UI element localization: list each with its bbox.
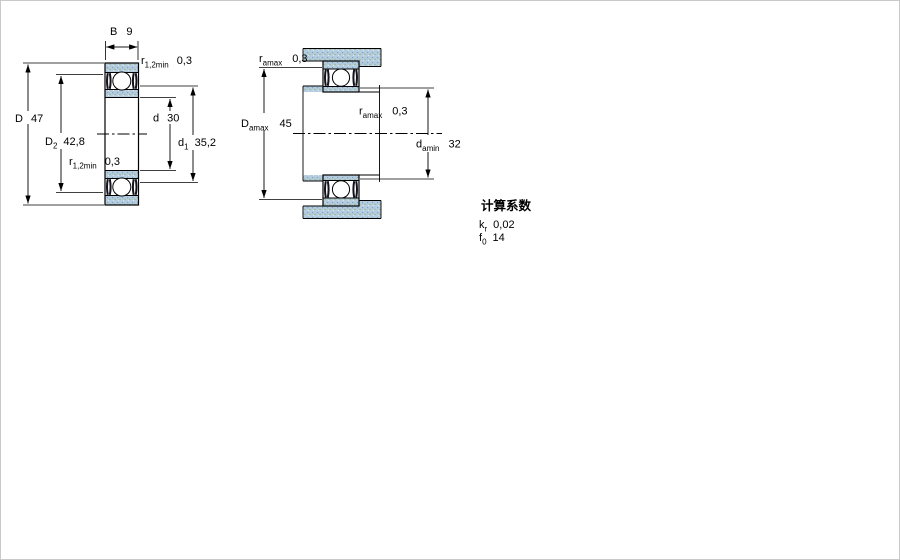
bearing-dimension-drawing: B9 r1,2min0,3 D47 D242,8 r1,2min0,3 xyxy=(0,0,900,560)
factors-heading: 计算系数 xyxy=(481,198,532,213)
seal-bottom-right xyxy=(133,179,137,195)
label-d1: d135,2 xyxy=(178,137,216,152)
seal-top-right xyxy=(353,70,357,86)
seal-top-left xyxy=(107,73,111,89)
label-ramax-top: ramax0,3 xyxy=(259,53,308,68)
seal-top-right xyxy=(133,73,137,89)
label-ramax-mid: ramax0,3 xyxy=(359,106,408,121)
seal-bottom-left xyxy=(107,179,111,195)
seal-bottom-right xyxy=(353,181,357,197)
shaft-shoulder-bottom xyxy=(303,175,323,181)
left-view: B9 r1,2min0,3 D47 D242,8 r1,2min0,3 xyxy=(15,26,216,205)
label-B: B9 xyxy=(110,26,132,38)
dimension-d1: d135,2 xyxy=(140,86,216,183)
calculation-factors: 计算系数 kr0,02 f014 xyxy=(479,198,532,247)
housing-band-bottom xyxy=(303,206,381,219)
seal-bottom-left xyxy=(325,181,329,197)
outer-ring-bottom xyxy=(323,198,359,206)
shaft-shoulder-top xyxy=(303,86,323,92)
bearing-cross-section-left xyxy=(97,63,147,205)
dimension-D2: D242,8 xyxy=(45,75,103,193)
label-d: d30 xyxy=(153,113,179,125)
label-damin: damin32 xyxy=(416,139,461,154)
label-D: D47 xyxy=(15,113,43,125)
bearing-cross-section-right xyxy=(293,61,442,206)
housing-shoulder-bottom-right xyxy=(359,201,381,207)
inner-ring-bottom xyxy=(105,171,139,179)
label-Damax: Damax45 xyxy=(241,118,292,133)
factor-f0: f014 xyxy=(479,232,505,247)
label-D2: D242,8 xyxy=(45,136,85,151)
outer-ring-top xyxy=(323,61,359,69)
housing-band-top xyxy=(303,49,381,62)
dimension-B: B9 xyxy=(106,26,139,60)
seal-top-left xyxy=(325,70,329,86)
ball-bottom xyxy=(332,181,349,198)
ball-top xyxy=(113,72,131,90)
outer-ring-bottom xyxy=(105,196,139,206)
ball-bottom xyxy=(113,178,131,196)
label-r12min-bottom: r1,2min0,3 xyxy=(69,156,120,171)
right-view: ramax0,3 Damax45 ramax0,3 damin32 xyxy=(241,49,461,219)
drawing-svg: B9 r1,2min0,3 D47 D242,8 r1,2min0,3 xyxy=(1,1,900,560)
housing-shoulder-top-right xyxy=(359,61,381,67)
outer-ring-top xyxy=(105,63,139,73)
label-r12min-top: r1,2min0,3 xyxy=(141,55,192,70)
inner-ring-top xyxy=(323,87,359,93)
dimension-D: D47 xyxy=(15,63,104,205)
inner-ring-top xyxy=(105,90,139,98)
inner-ring-bottom xyxy=(323,175,359,181)
ball-top xyxy=(332,69,349,86)
